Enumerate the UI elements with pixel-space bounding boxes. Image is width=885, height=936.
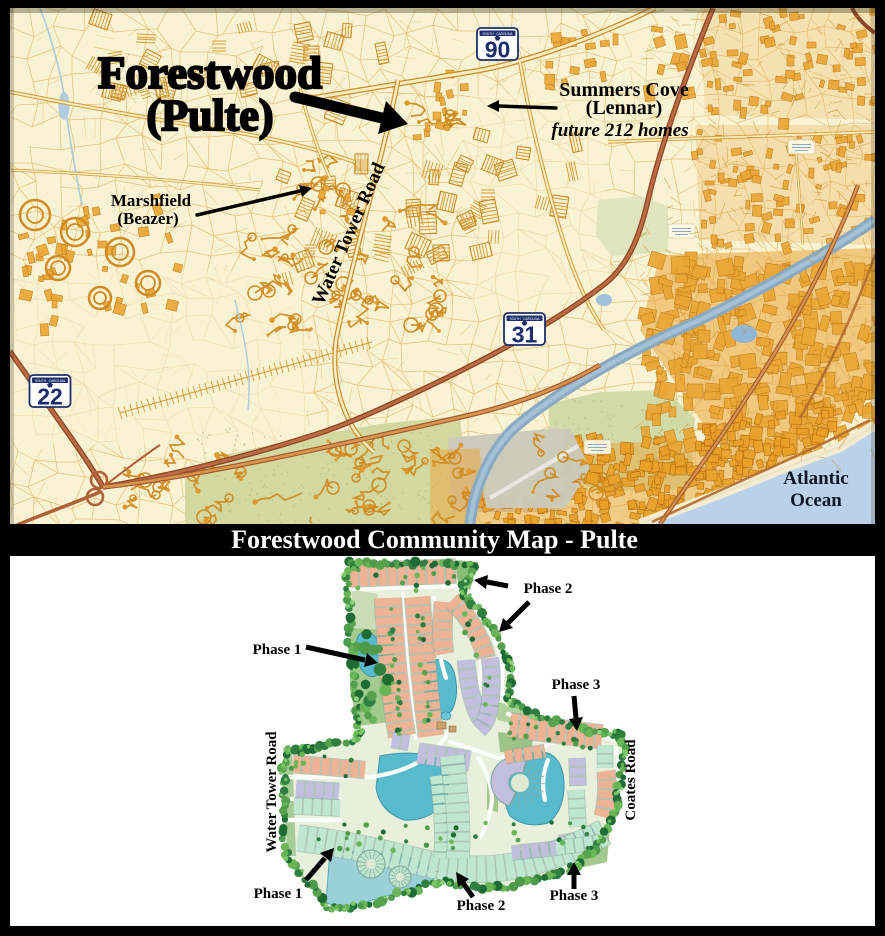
svg-text:Coates Road: Coates Road xyxy=(623,739,639,821)
svg-text:Ocean: Ocean xyxy=(790,490,842,511)
svg-text:31: 31 xyxy=(512,322,538,348)
svg-text:Marshfield: Marshfield xyxy=(111,191,192,210)
svg-text:(Lennar): (Lennar) xyxy=(586,97,663,119)
svg-text:future 212 homes: future 212 homes xyxy=(551,120,688,141)
svg-text:90: 90 xyxy=(485,37,511,63)
svg-text:Phase 3: Phase 3 xyxy=(552,677,601,693)
svg-text:Phase 3: Phase 3 xyxy=(550,888,599,904)
svg-text:SOUTH CAROLINA: SOUTH CAROLINA xyxy=(482,32,513,36)
svg-text:(Beazer): (Beazer) xyxy=(117,209,178,228)
svg-text:Water Tower Road: Water Tower Road xyxy=(264,731,280,853)
svg-text:Phase 2: Phase 2 xyxy=(457,898,506,914)
svg-text:SOUTH CAROLINA: SOUTH CAROLINA xyxy=(509,317,540,321)
svg-text:Phase 2: Phase 2 xyxy=(524,581,573,597)
svg-text:SOUTH CAROLINA: SOUTH CAROLINA xyxy=(35,379,66,383)
svg-text:Phase 1: Phase 1 xyxy=(253,642,302,658)
svg-text:22: 22 xyxy=(37,384,63,410)
svg-text:Phase 1: Phase 1 xyxy=(254,886,303,902)
svg-text:Atlantic: Atlantic xyxy=(783,468,848,489)
svg-text:(Pulte): (Pulte) xyxy=(146,91,273,140)
